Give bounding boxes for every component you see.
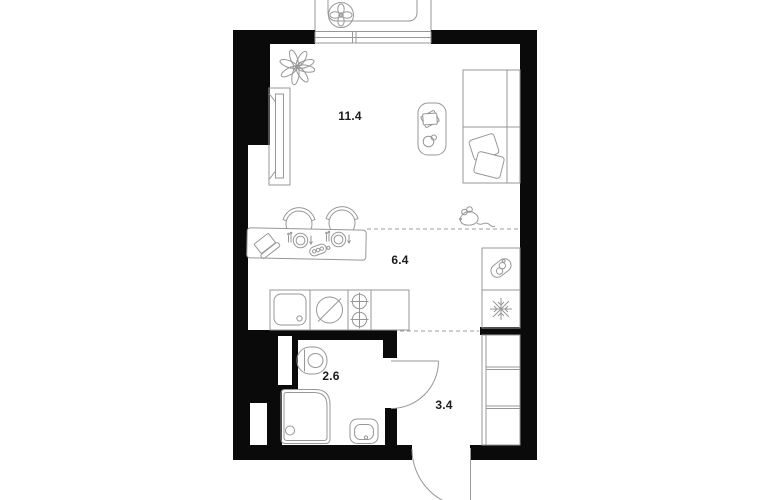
- snowflake-icon: [490, 298, 512, 320]
- wall-shaft: [278, 336, 292, 385]
- room-area-label-kitchen: 6.4: [391, 253, 408, 267]
- fan-icon: [329, 3, 354, 28]
- room-area-label-bathroom: 2.6: [322, 369, 339, 383]
- shower-icon: [281, 390, 330, 444]
- washbasin-icon: [350, 419, 378, 444]
- sink-icon: [274, 294, 306, 325]
- mouse-doodle-icon: [460, 207, 495, 227]
- induction-hob-icon: [317, 297, 343, 323]
- cup-icon: [423, 135, 436, 147]
- wall-niche: [250, 403, 267, 445]
- book-icon: [421, 110, 440, 128]
- floor-plan: 11.4 6.4 2.6 3.4: [0, 0, 770, 500]
- plant-icon: [279, 49, 315, 85]
- burner-icon: [351, 293, 369, 329]
- floor-plan-drawing: [0, 0, 770, 500]
- balcony: [315, 0, 431, 31]
- pillow-icon: [473, 151, 505, 179]
- wardrobe-icon: [269, 88, 290, 185]
- boiler-icon: [488, 256, 513, 280]
- bathroom-door-swing-icon: [391, 361, 439, 409]
- window-icon: [315, 32, 431, 44]
- entrance-door-swing-icon: [412, 448, 471, 500]
- closet-icon: [482, 335, 520, 445]
- room-area-label-living: 11.4: [338, 109, 362, 123]
- kitchen-counter: [270, 290, 409, 330]
- room-area-label-hallway: 3.4: [435, 398, 452, 412]
